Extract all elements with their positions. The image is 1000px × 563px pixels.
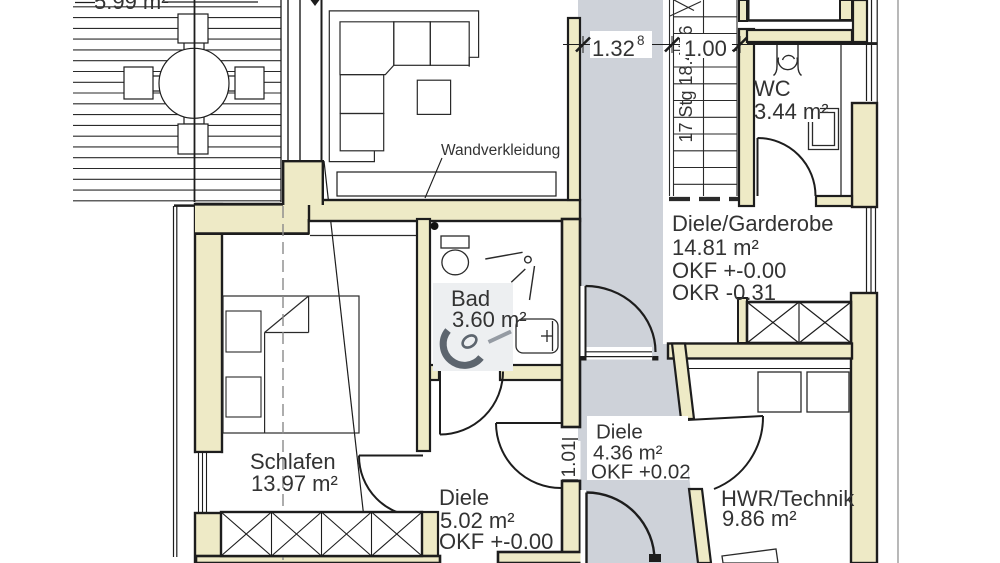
svg-text:1.32: 1.32: [592, 36, 635, 61]
svg-text:1.01: 1.01: [559, 441, 580, 478]
svg-text:1.00: 1.00: [684, 36, 727, 61]
svg-text:Diele: Diele: [596, 421, 643, 444]
svg-text:OKF +0.02: OKF +0.02: [591, 461, 691, 484]
svg-text:Wandverkleidung: Wandverkleidung: [441, 142, 560, 159]
svg-text:13.97 m²: 13.97 m²: [251, 471, 338, 496]
svg-text:OKR -0.31: OKR -0.31: [672, 280, 776, 305]
svg-text:5.99 m²: 5.99 m²: [94, 0, 169, 14]
svg-text:Diele/Garderobe: Diele/Garderobe: [672, 211, 833, 236]
svg-text:Diele: Diele: [439, 485, 489, 510]
svg-text:9.86 m²: 9.86 m²: [722, 506, 797, 531]
svg-text:WC: WC: [754, 76, 791, 101]
svg-text:14.81 m²: 14.81 m²: [672, 235, 759, 260]
svg-text:3.60 m²: 3.60 m²: [452, 307, 527, 332]
svg-text:OKF +-0.00: OKF +-0.00: [439, 529, 553, 554]
svg-text:8: 8: [637, 33, 645, 48]
svg-text:3.44 m²: 3.44 m²: [754, 99, 829, 124]
